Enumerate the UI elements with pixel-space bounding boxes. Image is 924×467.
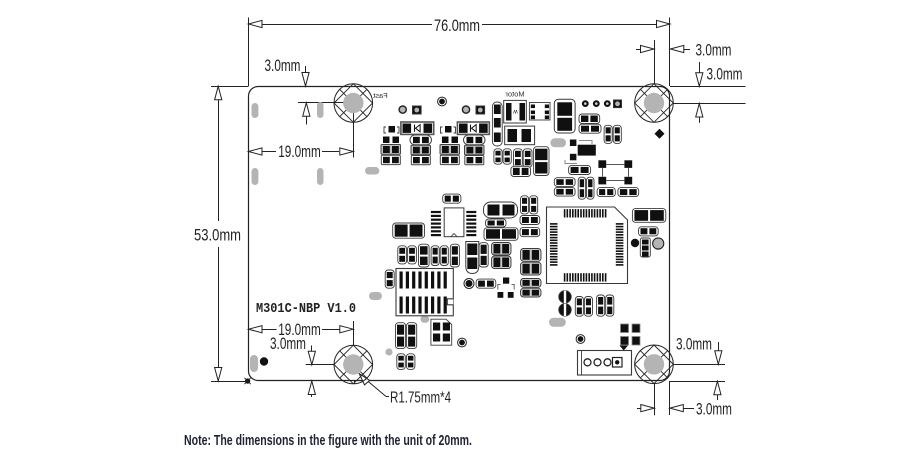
svg-text:3.0mm: 3.0mm bbox=[696, 42, 732, 60]
svg-text:Note: The dimensions in the fi: Note: The dimensions in the figure with … bbox=[184, 433, 472, 449]
svg-text:w: w bbox=[513, 108, 519, 114]
svg-text:53.0mm: 53.0mm bbox=[194, 227, 241, 245]
svg-text:3.0mm: 3.0mm bbox=[270, 335, 306, 353]
svg-text:M301C-NBP V1.0: M301C-NBP V1.0 bbox=[256, 301, 356, 317]
svg-text:19.0mm: 19.0mm bbox=[278, 143, 321, 161]
svg-text:3.0mm: 3.0mm bbox=[696, 401, 732, 419]
svg-text:3.0mm: 3.0mm bbox=[707, 65, 743, 83]
svg-text:3.0mm: 3.0mm bbox=[265, 57, 301, 75]
svg-text:Fast: Fast bbox=[372, 91, 388, 100]
svg-text:76.0mm: 76.0mm bbox=[434, 17, 480, 35]
svg-text:Motor: Motor bbox=[505, 90, 525, 99]
svg-text:R1.75mm*4: R1.75mm*4 bbox=[390, 389, 451, 406]
svg-text:3.0mm: 3.0mm bbox=[676, 336, 712, 354]
